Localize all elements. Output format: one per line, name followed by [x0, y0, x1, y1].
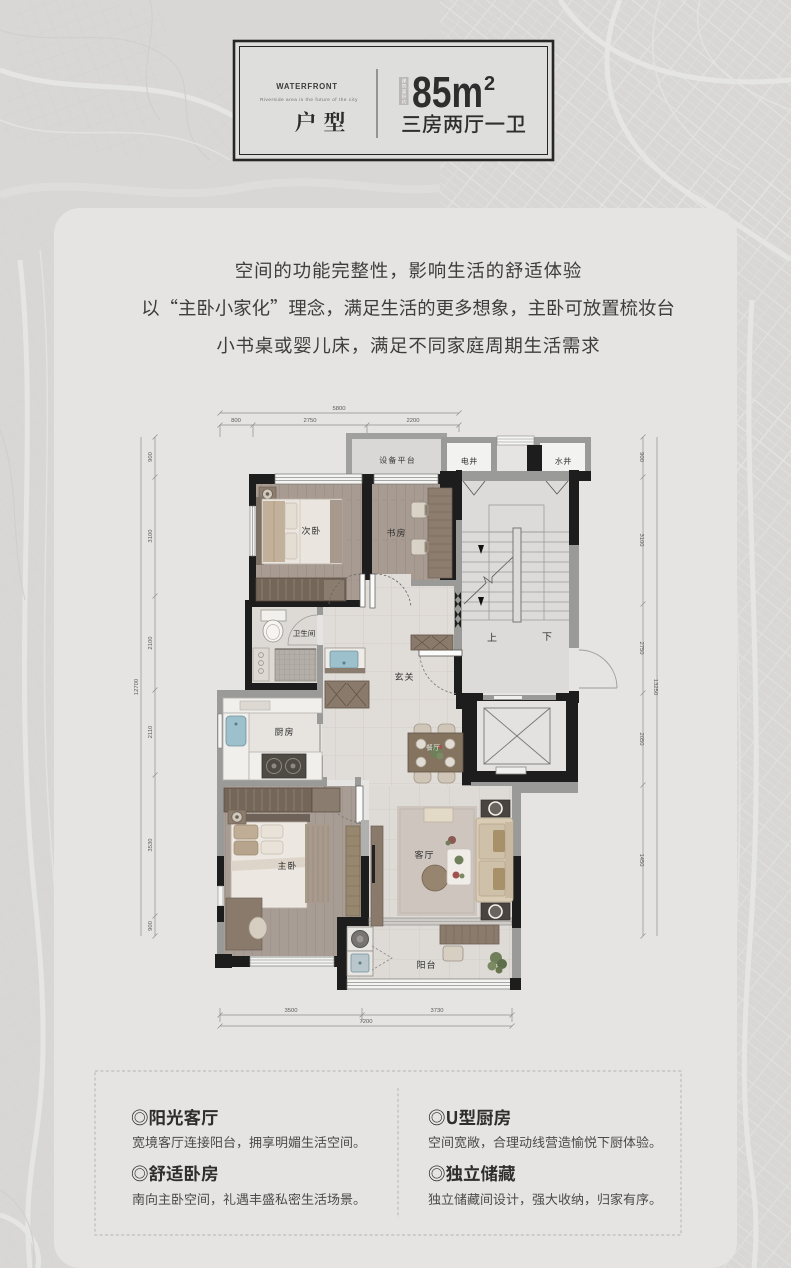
- svg-text:900: 900: [148, 920, 154, 931]
- svg-text:900: 900: [638, 452, 644, 463]
- svg-text:1450: 1450: [638, 853, 644, 867]
- svg-text:13250: 13250: [652, 679, 658, 696]
- svg-text:2200: 2200: [406, 418, 420, 424]
- svg-text:85m: 85m: [412, 68, 483, 117]
- svg-text:2750: 2750: [303, 418, 317, 424]
- svg-text:3100: 3100: [148, 529, 154, 543]
- svg-text:3530: 3530: [148, 838, 154, 852]
- svg-text:5800: 5800: [332, 406, 346, 412]
- svg-text:Riverside area is the future o: Riverside area is the future of the city: [260, 97, 358, 102]
- svg-text:800: 800: [231, 418, 242, 424]
- svg-text:7200: 7200: [359, 1019, 373, 1025]
- svg-text:WATERFRONT: WATERFRONT: [276, 82, 337, 91]
- svg-text:2050: 2050: [638, 732, 644, 746]
- svg-text:3500: 3500: [284, 1008, 298, 1014]
- svg-text:2110: 2110: [148, 725, 154, 738]
- svg-text:2100: 2100: [148, 636, 154, 650]
- svg-text:2750: 2750: [638, 641, 644, 655]
- svg-text:900: 900: [148, 451, 154, 462]
- svg-text:3730: 3730: [430, 1008, 444, 1014]
- svg-text:12700: 12700: [134, 678, 140, 695]
- svg-text:2: 2: [484, 73, 495, 95]
- svg-text:3100: 3100: [638, 533, 644, 547]
